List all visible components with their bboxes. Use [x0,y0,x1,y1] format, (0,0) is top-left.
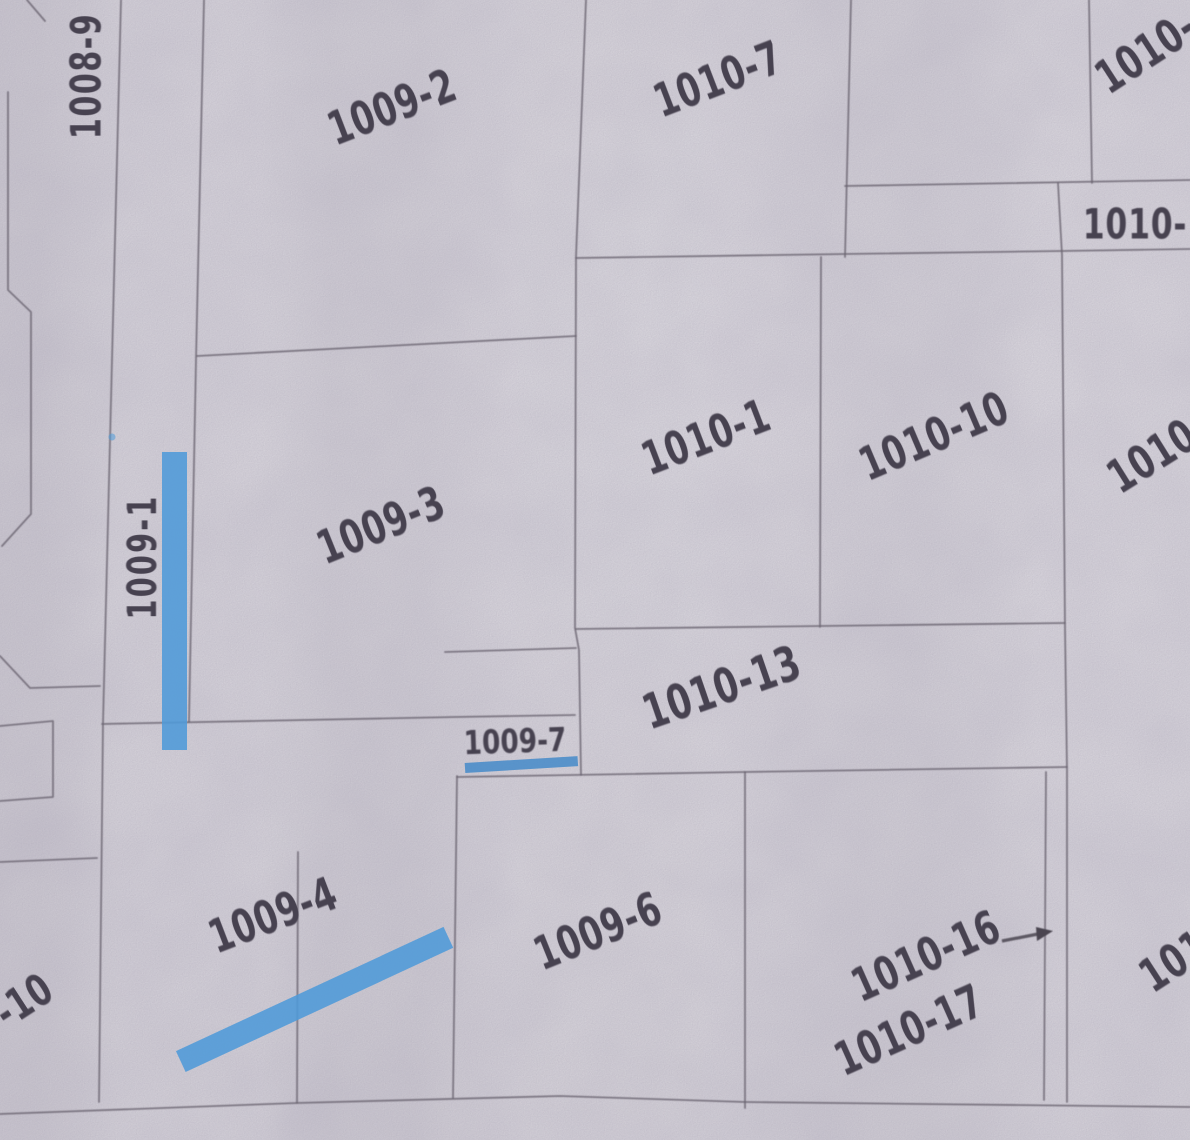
parcel-label-1009-1: 1009-1 [120,494,166,619]
parcel-label-1009-7: 1009-7 [463,720,567,763]
map-canvas: 1008-9 1009-2 1010-7 1010- 1010- 1010-1 … [0,0,1190,1140]
parcel-label-1008-9: 1008-9 [62,13,111,139]
boundary-lines-svg [0,0,1190,1140]
parcel-label-1010-strip: 1010- [1083,200,1187,249]
highlight-dot [109,434,116,441]
